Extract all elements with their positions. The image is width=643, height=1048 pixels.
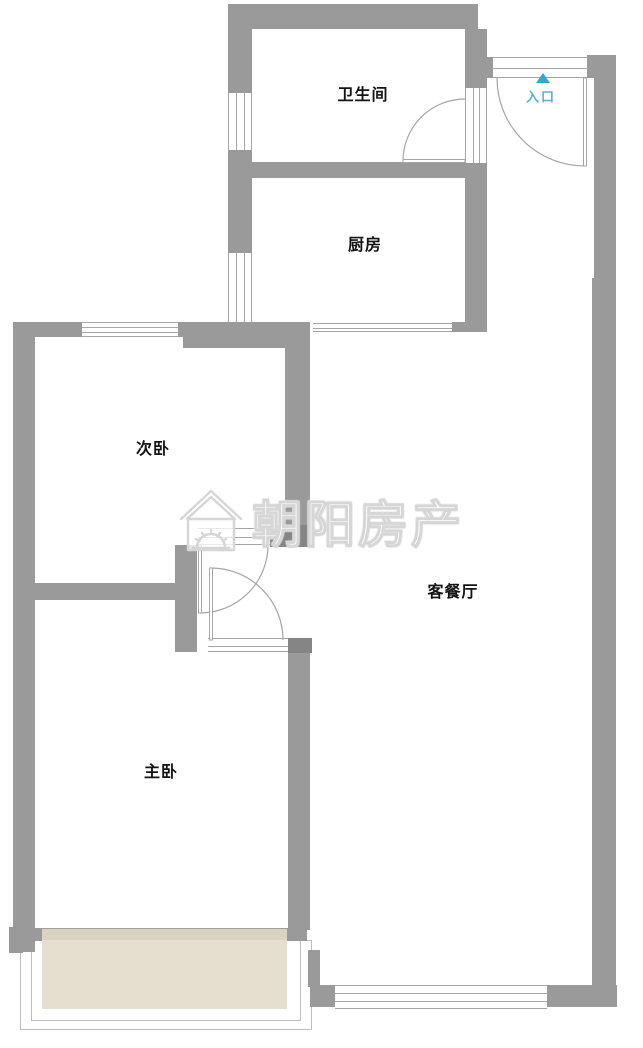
floor-plan: 卫生间 厨房 次卧 主卧 客餐厅 入口 朝阳房产 [0,0,643,1048]
master-bedroom-door [210,568,284,640]
entrance-arrow-icon [536,73,550,83]
entrance-label: 入口 [526,87,556,106]
room-label-kitchen: 厨房 [348,231,382,255]
second-bedroom-door [199,545,269,613]
room-label-second-bedroom: 次卧 [136,435,170,459]
door-swings [0,0,643,1048]
room-label-living-dining: 客餐厅 [427,578,478,602]
room-label-master-bedroom: 主卧 [144,758,178,782]
bathroom-door [403,99,465,163]
room-label-bathroom: 卫生间 [337,81,388,105]
